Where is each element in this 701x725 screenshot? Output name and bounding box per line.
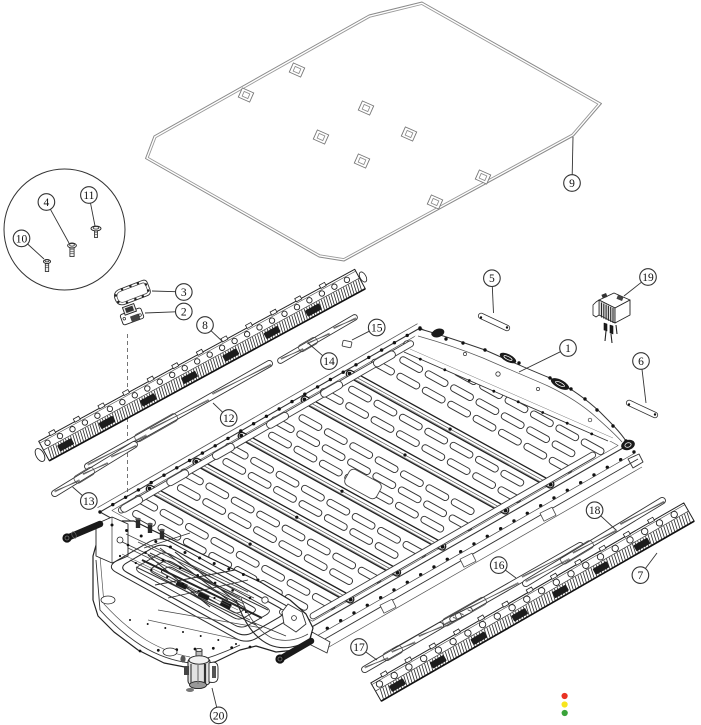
svg-text:3: 3 — [181, 287, 187, 299]
svg-text:16: 16 — [493, 560, 505, 572]
svg-text:15: 15 — [371, 323, 383, 335]
svg-text:4: 4 — [44, 197, 50, 209]
svg-text:6: 6 — [638, 356, 644, 368]
svg-text:8: 8 — [202, 320, 208, 332]
svg-text:14: 14 — [323, 356, 335, 368]
svg-text:12: 12 — [223, 413, 235, 425]
svg-text:17: 17 — [353, 642, 365, 654]
svg-text:5: 5 — [489, 273, 495, 285]
svg-text:11: 11 — [83, 190, 94, 202]
svg-text:19: 19 — [642, 272, 654, 284]
svg-text:13: 13 — [83, 496, 95, 508]
svg-text:9: 9 — [569, 178, 575, 190]
svg-text:20: 20 — [213, 710, 225, 722]
svg-text:18: 18 — [589, 505, 601, 517]
svg-text:7: 7 — [638, 570, 644, 582]
svg-text:1: 1 — [565, 343, 571, 355]
svg-text:2: 2 — [181, 307, 187, 319]
svg-text:10: 10 — [16, 233, 28, 245]
